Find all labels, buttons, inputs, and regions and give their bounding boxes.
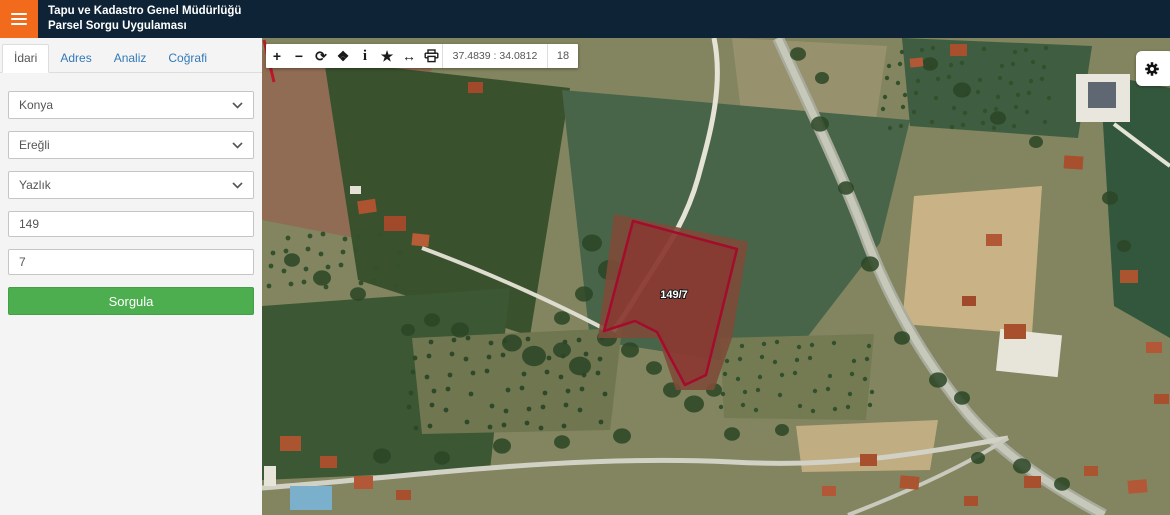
ilce-select-value: Ereğli (19, 138, 50, 152)
ada-input[interactable] (8, 211, 254, 237)
print-icon (424, 49, 439, 63)
coordinates-display: 37.4839 : 34.0812 (442, 44, 547, 68)
app-title-line1: Tapu ve Kadastro Genel Müdürlüğü (48, 4, 1170, 19)
satellite-imagery: 149/7 (262, 38, 1170, 515)
map-toolbar: + − ⟳ ❖ i ★ ↔ 37.4839 : 34.0812 18 (266, 44, 578, 68)
query-tabs: İdari Adres Analiz Coğrafi (0, 38, 262, 73)
print-button[interactable] (420, 44, 442, 68)
query-sidebar: İdari Adres Analiz Coğrafi Konya Ereğli … (0, 38, 262, 515)
map-canvas[interactable]: 149/7 + − ⟳ ❖ i ★ ↔ 37.4839 : 34.0812 18 (262, 38, 1170, 515)
parcel-label: 149/7 (660, 289, 688, 301)
app-title-line2: Parsel Sorgu Uygulaması (48, 19, 1170, 34)
settings-button[interactable] (1136, 51, 1170, 86)
tab-cografi[interactable]: Coğrafi (157, 45, 218, 72)
chevron-down-icon (232, 182, 243, 189)
zoom-out-button[interactable]: − (288, 44, 310, 68)
refresh-button[interactable]: ⟳ (310, 44, 332, 68)
mahalle-select[interactable]: Yazlık (8, 171, 254, 199)
top-navbar: Tapu ve Kadastro Genel Müdürlüğü Parsel … (0, 0, 1170, 38)
pan-button[interactable]: ❖ (332, 44, 354, 68)
measure-button[interactable]: ↔ (398, 44, 420, 68)
zoom-in-button[interactable]: + (266, 44, 288, 68)
zoom-level-display: 18 (547, 44, 578, 68)
parsel-input[interactable] (8, 249, 254, 275)
ilce-select[interactable]: Ereğli (8, 131, 254, 159)
hamburger-icon (11, 13, 27, 25)
sorgula-button[interactable]: Sorgula (8, 287, 254, 315)
chevron-down-icon (232, 142, 243, 149)
il-select-value: Konya (19, 98, 53, 112)
gear-icon (1143, 60, 1161, 78)
tab-idari[interactable]: İdari (2, 44, 49, 73)
menu-button[interactable] (0, 0, 38, 38)
favorite-button[interactable]: ★ (376, 44, 398, 68)
tab-adres[interactable]: Adres (49, 45, 102, 72)
query-form: Konya Ereğli Yazlık Sorgula (0, 73, 262, 315)
tab-analiz[interactable]: Analiz (103, 45, 158, 72)
il-select[interactable]: Konya (8, 91, 254, 119)
mahalle-select-value: Yazlık (19, 178, 51, 192)
info-button[interactable]: i (354, 44, 376, 68)
app-title: Tapu ve Kadastro Genel Müdürlüğü Parsel … (48, 0, 1170, 34)
chevron-down-icon (232, 102, 243, 109)
